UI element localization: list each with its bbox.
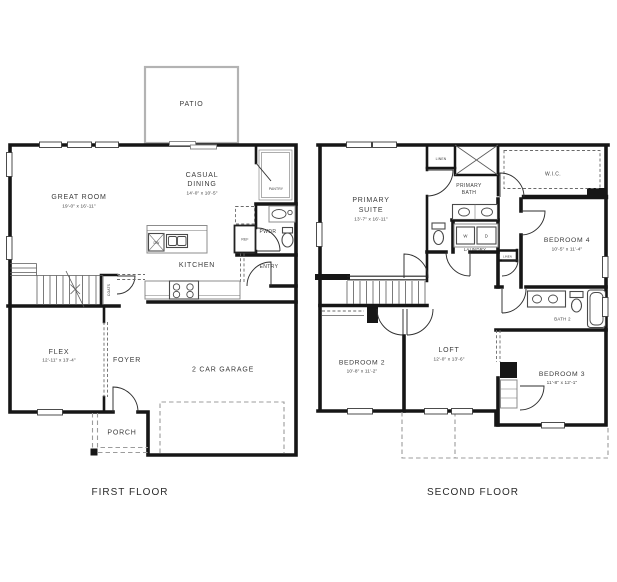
- great-room-label: GREAT ROOM: [51, 194, 106, 201]
- wic-shelves: [504, 151, 600, 189]
- linen-upper-label: LINEN: [436, 157, 447, 161]
- primary-suite-label-1: PRIMARY: [352, 197, 389, 204]
- primary-bath-label-1: PRIMARY: [456, 183, 482, 189]
- bath2-label: BATH 2: [554, 317, 571, 322]
- wic-label: W.I.C.: [545, 172, 561, 178]
- pwdr-label: PWDR: [260, 229, 277, 235]
- great-room-dims: 19'-0" x 16'-11": [62, 204, 96, 209]
- loft-dims: 12'-0" x 13'-6": [433, 357, 464, 362]
- kitchen-label: KITCHEN: [179, 262, 215, 269]
- coats-closet-door: [117, 276, 135, 294]
- primary-suite-label-2: SUITE: [359, 207, 384, 214]
- staircase-first-floor: [10, 264, 103, 308]
- garage-label: 2 CAR GARAGE: [192, 367, 254, 374]
- primary-bath-vanity: [453, 205, 498, 220]
- first-floor-exterior-walls: [10, 145, 296, 455]
- casual-dining-label-1: CASUAL: [186, 172, 219, 179]
- patio-label: PATIO: [180, 101, 204, 108]
- loft-side-door: [407, 309, 433, 335]
- shower: [455, 145, 498, 175]
- bedroom2-door: [377, 309, 403, 335]
- dw-label: DW: [154, 241, 161, 245]
- bath2-door: [502, 289, 526, 313]
- bedroom4-door: [521, 211, 545, 235]
- casual-dining-label-2: DINING: [187, 181, 216, 188]
- first-floor-title: FIRST FLOOR: [92, 487, 169, 498]
- staircase-second-floor: [347, 276, 427, 304]
- foyer-label: FOYER: [113, 357, 141, 364]
- powder-room-toilet: [282, 228, 293, 248]
- primary-bath-label-2: BATH: [462, 190, 477, 196]
- ref-label: REF: [241, 238, 248, 242]
- bath2-toilet: [570, 292, 583, 313]
- primary-bath-toilet: [432, 223, 445, 245]
- first-floor-plan: PATIO GREAT ROOM 19'-0" x 16'-11" CASUAL…: [7, 67, 297, 498]
- bedroom4-dims: 10'-5" x 11'-4": [552, 247, 583, 252]
- bedroom4-label: BEDROOM 4: [544, 237, 590, 244]
- entry-label: ENTRY: [260, 264, 279, 270]
- pantry-shelves: [259, 150, 292, 200]
- bedroom3-door: [520, 386, 544, 410]
- bedroom2-dims: 10'-8" x 11'-2": [347, 369, 378, 374]
- cased-openings-first-floor: [104, 253, 244, 397]
- coats-label: COATS: [107, 283, 111, 296]
- cased-openings-second-floor: [497, 330, 501, 362]
- pantry-door: [256, 163, 271, 181]
- flex-dims: 12'-11" x 13'-4": [42, 358, 76, 363]
- second-floor-plan: PRIMARY SUITE 13'-7" x 16'-11" LINEN PRI…: [317, 142, 609, 498]
- floor-plan-drawing: PATIO GREAT ROOM 19'-0" x 16'-11" CASUAL…: [0, 0, 617, 582]
- primary-suite-dims: 13'-7" x 16'-11": [354, 217, 388, 222]
- linen-hall-door: [502, 260, 518, 276]
- garage-door-outline: [160, 402, 284, 453]
- dryer-label: D: [485, 234, 488, 239]
- bedroom2-closet: [322, 311, 364, 316]
- kitchen-counter-range: [145, 281, 240, 299]
- bedroom3-closet: [501, 380, 518, 408]
- primary-bath-door: [427, 170, 453, 196]
- bedroom3-dims: 11'-8" x 12'-1": [547, 380, 578, 385]
- casual-dining-dims: 14'-0" x 10'-5": [186, 191, 217, 196]
- bedroom2-label: BEDROOM 2: [339, 360, 385, 367]
- bedroom3-label: BEDROOM 3: [539, 371, 585, 378]
- pantry-label: PANTRY: [269, 187, 284, 191]
- second-floor-title: SECOND FLOOR: [427, 487, 519, 498]
- powder-room-sink: [269, 206, 295, 222]
- refrigerator: [235, 207, 256, 253]
- loft-label: LOFT: [438, 347, 459, 354]
- front-door: [113, 387, 138, 412]
- bath2-vanity: [528, 291, 566, 307]
- floor-plan-page: PATIO GREAT ROOM 19'-0" x 16'-11" CASUAL…: [0, 0, 617, 582]
- laundry-door: [446, 252, 470, 276]
- porch-label: PORCH: [107, 430, 136, 437]
- laundry-appliances: [454, 224, 498, 247]
- primary-suite-door: [404, 254, 428, 278]
- kitchen-island: [147, 226, 207, 254]
- linen-hall-label: LINEN: [503, 254, 512, 258]
- roofline-outline: [402, 412, 608, 458]
- laundry-label: LAUNDRY: [464, 247, 487, 252]
- washer-label: W: [463, 234, 468, 239]
- flex-label: FLEX: [49, 349, 70, 356]
